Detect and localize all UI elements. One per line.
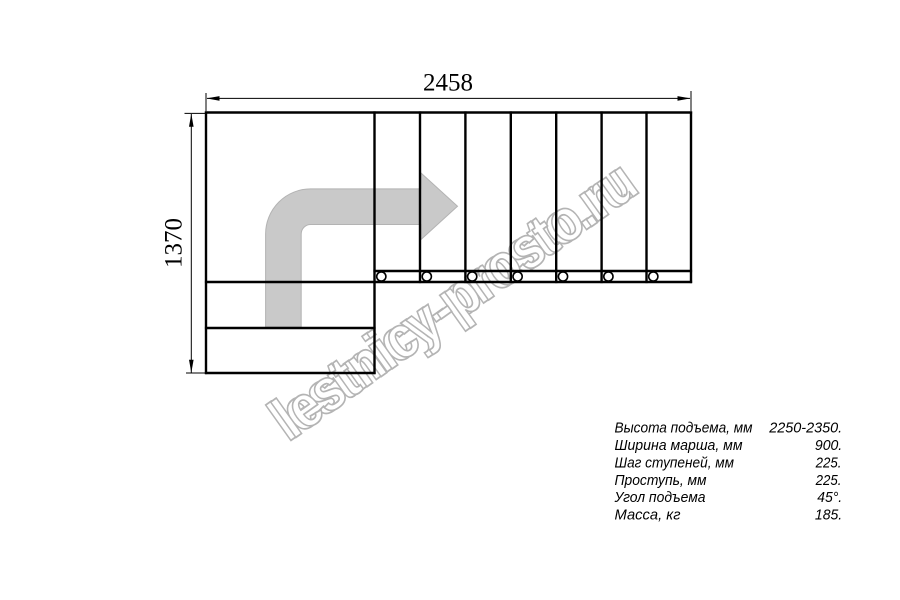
svg-text:225.: 225. — [815, 472, 842, 489]
svg-text:1370: 1370 — [161, 218, 188, 268]
svg-text:225.: 225. — [815, 455, 842, 472]
svg-text:Проступь, мм: Проступь, мм — [615, 472, 707, 489]
svg-text:Шаг ступеней, мм: Шаг ступеней, мм — [615, 455, 735, 472]
svg-text:Ширина марша, мм: Ширина марша, мм — [615, 437, 743, 454]
svg-text:2458: 2458 — [423, 70, 473, 97]
svg-text:Масса, кг: Масса, кг — [615, 507, 682, 524]
svg-text:185.: 185. — [815, 507, 842, 524]
svg-text:900.: 900. — [815, 437, 842, 454]
svg-text:2250-2350.: 2250-2350. — [768, 420, 842, 437]
svg-text:Высота подъема, мм: Высота подъема, мм — [615, 420, 753, 437]
svg-text:Угол подъема: Угол подъема — [614, 489, 706, 506]
svg-text:45°.: 45°. — [817, 489, 842, 506]
